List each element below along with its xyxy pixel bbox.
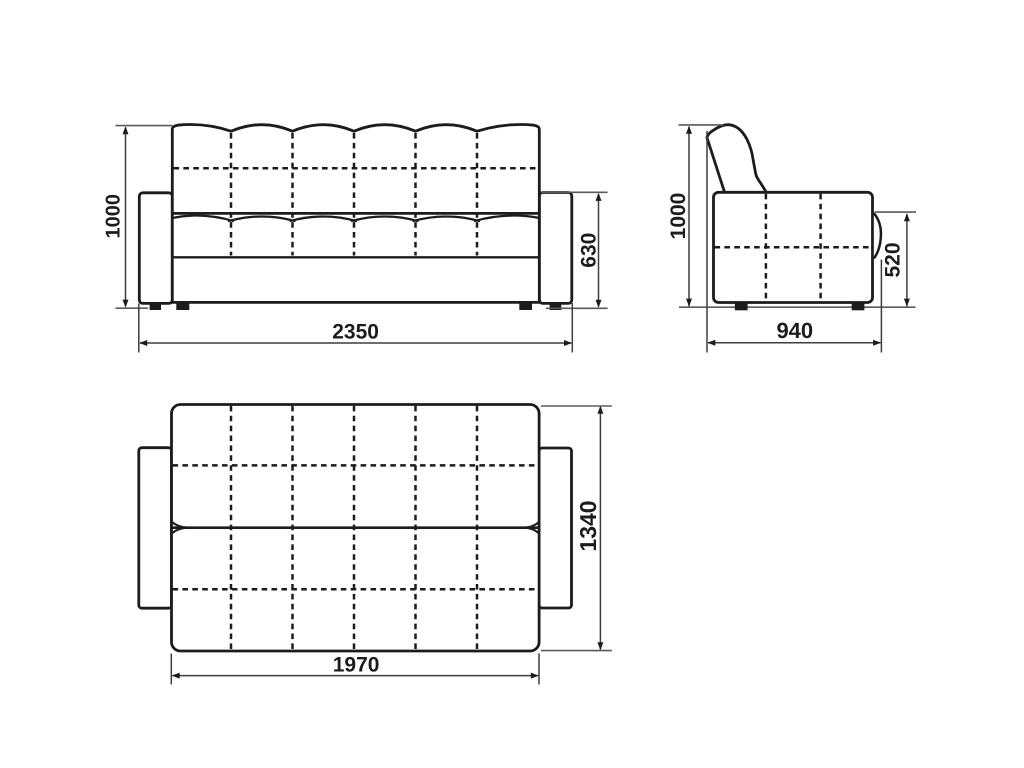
svg-text:1000: 1000 <box>103 194 125 239</box>
svg-text:630: 630 <box>577 233 600 268</box>
svg-text:1000: 1000 <box>667 193 690 240</box>
svg-text:1970: 1970 <box>333 654 380 677</box>
svg-text:520: 520 <box>882 242 905 277</box>
svg-text:2350: 2350 <box>332 321 379 344</box>
svg-text:940: 940 <box>776 318 813 343</box>
svg-text:1340: 1340 <box>575 500 601 551</box>
